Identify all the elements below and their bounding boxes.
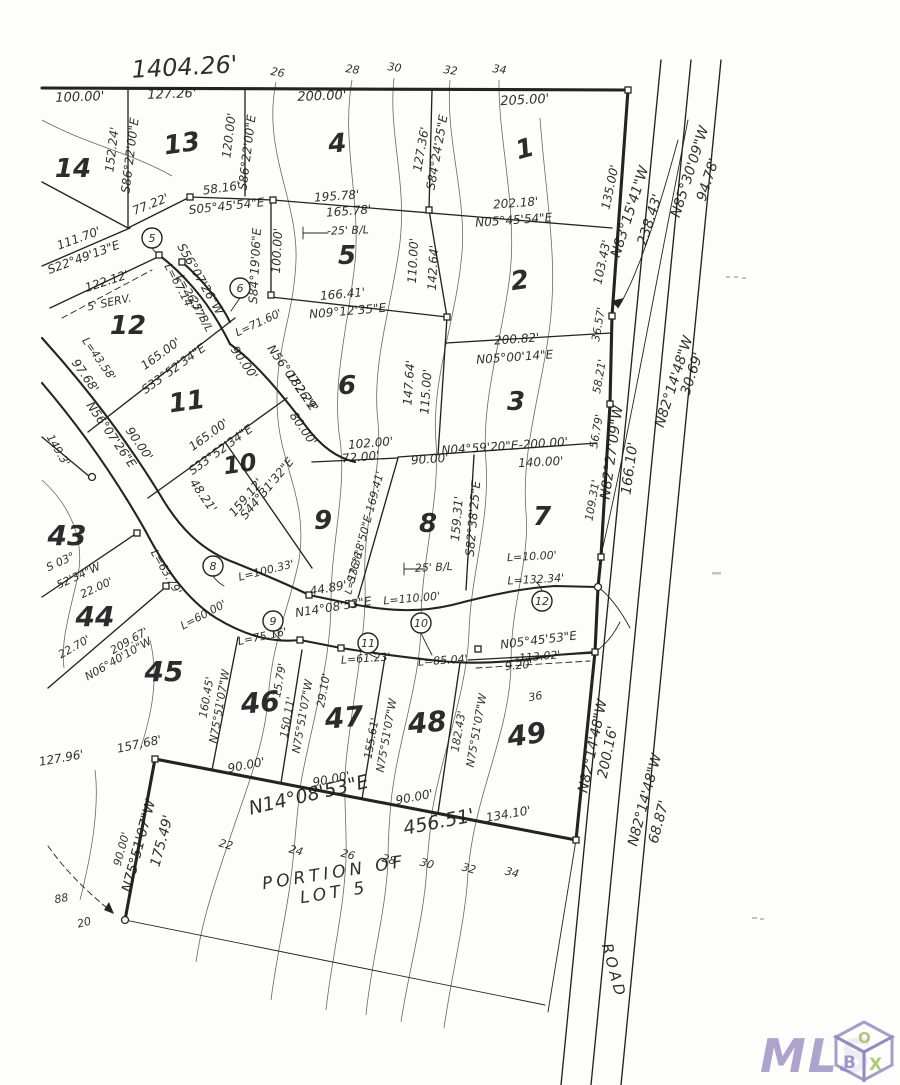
curve-point-number-10: 10 (414, 617, 428, 630)
lot-line-extension (125, 920, 545, 1005)
survey-node-square (609, 313, 615, 319)
curve-leader (231, 298, 240, 311)
map-label: 152.24' (102, 126, 121, 173)
map-label: 165.78' (326, 202, 372, 219)
lot-number-5: 5 (338, 241, 356, 271)
survey-node-square (625, 87, 631, 93)
lot-number-8: 8 (419, 509, 437, 539)
lot-number-11: 11 (167, 385, 207, 420)
scan-page: 1404.26'100.00'127.26'200.00'205.00'2628… (0, 0, 900, 1085)
lot-line (42, 182, 128, 228)
cube-letter-b: B (843, 1053, 856, 1073)
lot-number-49: 49 (504, 716, 548, 754)
lot-number-2: 2 (509, 265, 531, 297)
setback-bracket (303, 227, 328, 239)
survey-node-round (89, 474, 96, 481)
map-label: 48.21' (187, 476, 220, 515)
lot-number-3: 3 (507, 387, 525, 417)
map-label: L=60.00' (178, 597, 228, 632)
map-label: 182.29' (284, 369, 321, 414)
junction-hook (598, 587, 630, 628)
curve-point-number-6: 6 (237, 282, 244, 295)
noise-speck (712, 572, 721, 575)
highway-edge-continuation (548, 840, 576, 1012)
noise-speck (734, 276, 738, 278)
lot-number-45: 45 (144, 655, 184, 688)
map-label: 30 (387, 60, 403, 75)
junction-hook (595, 622, 620, 652)
survey-node-square (444, 314, 450, 320)
map-label: 166.10' (618, 441, 641, 496)
map-label: 28 (345, 62, 361, 77)
noise-speck (726, 276, 730, 278)
street-edge-north (42, 338, 597, 610)
map-label: 58.16' (202, 178, 241, 197)
survey-node-round (595, 584, 602, 591)
map-label: 120.00' (219, 112, 238, 159)
plat-drawing: 1404.26'100.00'127.26'200.00'205.00'2628… (0, 0, 900, 1085)
map-label: N09°12'35"E (309, 301, 388, 322)
survey-node-square (475, 646, 481, 652)
map-label: 127.26' (147, 86, 197, 103)
lot-number-48: 48 (405, 704, 448, 740)
curve-point-number-5: 5 (149, 232, 156, 245)
map-label: 32 (460, 861, 477, 877)
scan-noise (712, 276, 764, 920)
map-label: 1404.26' (131, 50, 238, 84)
map-label: -25' B/L (327, 223, 369, 237)
cube-letter-x: X (869, 1055, 882, 1075)
lot-number-13: 13 (162, 127, 202, 162)
map-label: S 03° (44, 550, 77, 574)
map-label: 90.00' (394, 787, 434, 808)
lot-number-12: 12 (110, 311, 146, 341)
cube-letter-o: O (858, 1029, 871, 1047)
survey-node-square (426, 207, 432, 213)
map-label: 56.79' (587, 413, 606, 449)
survey-node-round (122, 917, 129, 924)
map-label: 22 (217, 837, 234, 853)
map-label: 22.70' (56, 633, 92, 662)
curve-leader (421, 633, 432, 655)
arrowhead (104, 902, 114, 914)
curve-leader (213, 576, 224, 586)
map-label: N05°00'14"E (476, 347, 554, 366)
lot-number-46: 46 (238, 684, 281, 720)
map-label: 20 (76, 915, 93, 931)
map-label: 26 (270, 65, 286, 80)
map-label: 122.12' (83, 268, 130, 295)
map-label: 9.20' (504, 658, 533, 673)
mls-logo: MLS B O X (760, 1022, 892, 1083)
survey-node-square (338, 645, 344, 651)
map-label: 140.00' (518, 454, 564, 470)
map-label: 100.00' (55, 89, 105, 106)
lot-number-1: 1 (512, 132, 537, 166)
map-label: L=71.60' (233, 306, 284, 339)
map-label: 142.64' (425, 245, 441, 291)
map-label: L=100.33' (237, 557, 295, 583)
map-label: 88 (53, 891, 69, 906)
map-label: 44.89' (309, 578, 349, 598)
survey-node-square (598, 554, 604, 560)
lot-number-7: 7 (533, 502, 552, 532)
lot-number-4: 4 (326, 128, 348, 160)
map-label: 36.57' (589, 306, 608, 342)
map-label: 72.00' (341, 448, 380, 465)
map-label: N14°08'53"E (247, 771, 371, 820)
lot-number-6: 6 (338, 371, 356, 401)
map-label: L=85.04' (417, 652, 468, 668)
map-label: 134.10' (485, 803, 532, 825)
lot-number-9: 9 (314, 506, 332, 536)
map-label: 159.31' (448, 495, 466, 541)
map-label: 34 (492, 62, 508, 77)
noise-speck (742, 277, 746, 279)
map-label: 24 (287, 843, 304, 859)
map-label: 135.00' (599, 164, 622, 211)
curve-point-number-11: 11 (361, 637, 375, 650)
map-label: 90.00' (226, 755, 266, 776)
contour-line (80, 770, 96, 900)
map-label: 58.21' (590, 358, 609, 394)
map-label: 205.00' (500, 92, 550, 110)
map-label: 110.00' (405, 238, 421, 284)
map-label: 80.00' (287, 409, 320, 448)
map-label: 200.82' (494, 330, 540, 347)
map-label: S05°45'54"E (188, 195, 265, 217)
curve-point-number-9: 9 (270, 615, 277, 628)
map-label: 77.22' (130, 191, 170, 218)
curve-point-number-12: 12 (535, 595, 549, 608)
lot-number-47: 47 (322, 699, 365, 735)
lot-number-44: 44 (75, 600, 115, 633)
survey-node-square (297, 637, 303, 643)
curve-point-number-8: 8 (210, 560, 217, 573)
map-label: N05°45'53"E (499, 628, 578, 651)
lot-number-10: 10 (221, 448, 258, 480)
survey-node-square (268, 292, 274, 298)
map-label: 34 (503, 865, 520, 881)
map-label: 166.41' (319, 285, 365, 303)
lot-line (438, 317, 447, 455)
lot-number-43: 43 (47, 519, 87, 552)
map-label: 127.96' (38, 747, 85, 769)
survey-node-square (270, 197, 276, 203)
map-label: 90.00' (228, 343, 261, 382)
map-label: 100.00' (269, 228, 285, 274)
map-label: S86°22'00"E (118, 117, 141, 194)
noise-speck (760, 918, 764, 920)
survey-node-square (187, 194, 193, 200)
map-label: 157.68' (116, 733, 163, 756)
map-label: L=10.00' (507, 549, 557, 565)
map-label: 200.00' (297, 88, 347, 105)
survey-node-square (573, 837, 579, 843)
map-label: L=110.00' (383, 590, 441, 608)
map-label: 103.43' (591, 239, 614, 286)
map-label: N75°51'07"W (464, 691, 490, 768)
survey-node-square (134, 530, 140, 536)
survey-node-square (592, 649, 598, 655)
noise-speck (752, 917, 757, 919)
map-label: 36 (527, 689, 543, 704)
map-label: 202.18' (493, 194, 539, 211)
survey-node-square (152, 756, 158, 762)
survey-node-square (156, 252, 162, 258)
map-label: -25' B/L (411, 560, 453, 575)
map-label: 195.78' (314, 187, 360, 204)
map-label: 147.64' (400, 360, 417, 406)
map-label: 149.3' (44, 432, 73, 468)
map-label: 30 (418, 856, 435, 872)
map-label: 115.00' (417, 369, 434, 415)
lot-number-14: 14 (55, 154, 91, 184)
map-label: N05°45'54"E (475, 210, 553, 229)
map-label: 32 (443, 63, 459, 78)
